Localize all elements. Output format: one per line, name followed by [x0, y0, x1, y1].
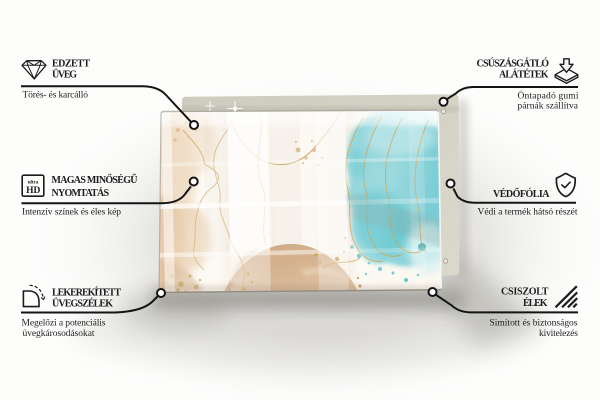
- svg-text:kivitelezés: kivitelezés: [539, 329, 578, 339]
- svg-text:EDZETT: EDZETT: [52, 58, 90, 69]
- svg-text:MAGAS MINŐSÉGŰ: MAGAS MINŐSÉGŰ: [52, 174, 138, 186]
- svg-text:Simított és biztonságos: Simított és biztonságos: [490, 319, 578, 329]
- svg-text:ultra: ultra: [28, 181, 39, 186]
- svg-text:ÉLEK: ÉLEK: [523, 297, 548, 309]
- svg-text:NYOMTATÁS: NYOMTATÁS: [52, 187, 110, 199]
- svg-text:ALÁTÉTEK: ALÁTÉTEK: [499, 68, 549, 80]
- svg-text:LEKEREKÍTETT: LEKEREKÍTETT: [52, 286, 121, 298]
- svg-text:Öntapadó gumi: Öntapadó gumi: [518, 89, 579, 101]
- svg-text:párnák szállítva: párnák szállítva: [518, 101, 579, 111]
- svg-text:CSÚSZÁSGÁTLÓ: CSÚSZÁSGÁTLÓ: [477, 58, 550, 70]
- svg-text:Megelőzi a potenciális: Megelőzi a potenciális: [22, 319, 106, 329]
- svg-text:Védi a termék hátsó részét: Védi a termék hátsó részét: [478, 208, 578, 218]
- svg-text:Intenzív színek és éles kép: Intenzív színek és éles kép: [22, 207, 121, 217]
- svg-text:ÜVEGSZÉLEK: ÜVEGSZÉLEK: [52, 297, 113, 310]
- svg-text:CSISZOLT: CSISZOLT: [501, 287, 549, 298]
- svg-text:HD: HD: [26, 186, 40, 196]
- svg-text:VÉDŐFÓLIA: VÉDŐFÓLIA: [493, 188, 550, 200]
- svg-text:üvegkárosodásokat: üvegkárosodásokat: [23, 329, 95, 339]
- svg-text:Törés- és karcálló: Törés- és karcálló: [23, 90, 89, 100]
- svg-text:ÜVEG: ÜVEG: [52, 67, 77, 80]
